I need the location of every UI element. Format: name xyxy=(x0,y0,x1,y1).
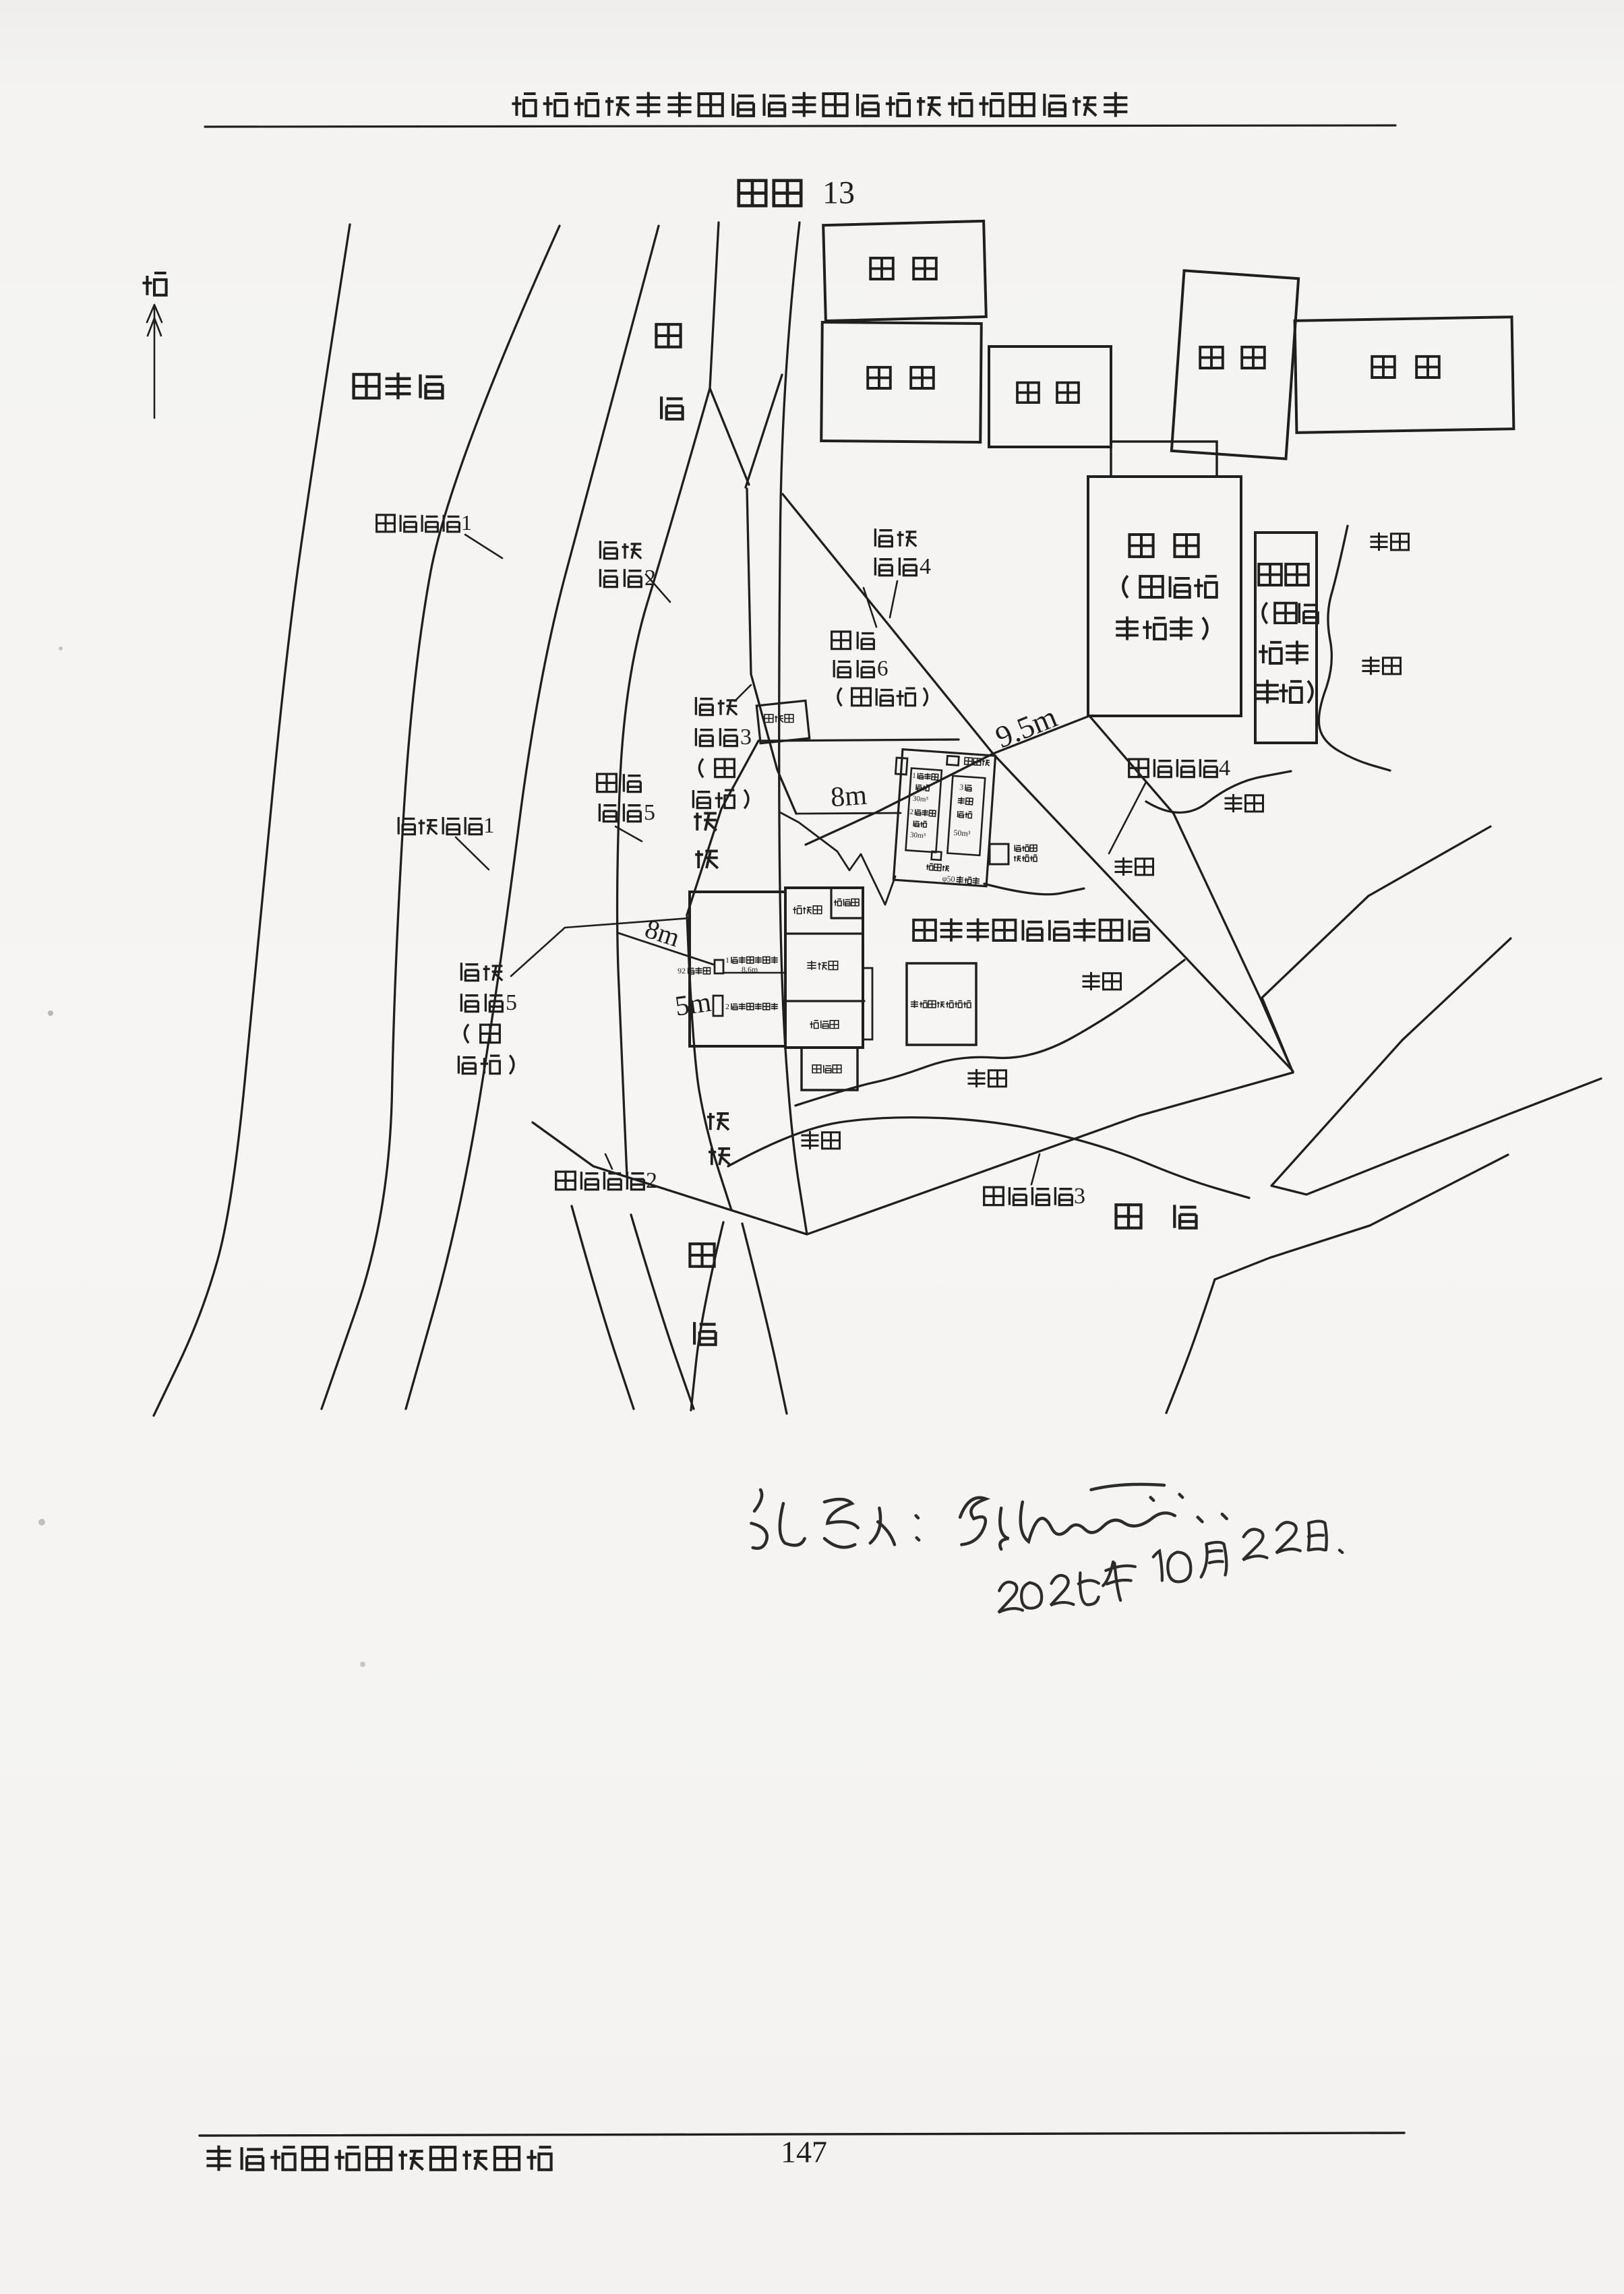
svg-text:5m: 5m xyxy=(673,987,713,1023)
svg-text:2: 2 xyxy=(725,1002,729,1011)
svg-text:4: 4 xyxy=(1219,756,1230,781)
svg-text:30m³: 30m³ xyxy=(912,795,928,804)
svg-text:φ50: φ50 xyxy=(942,874,955,884)
svg-text:30m³: 30m³ xyxy=(910,831,926,841)
svg-text:5: 5 xyxy=(644,800,655,825)
svg-text:4: 4 xyxy=(920,554,931,579)
svg-text:92: 92 xyxy=(678,966,686,975)
svg-text:8.6m: 8.6m xyxy=(742,965,758,974)
svg-text:5: 5 xyxy=(506,990,517,1015)
svg-text:147: 147 xyxy=(781,2135,827,2169)
svg-text:8m: 8m xyxy=(830,780,868,814)
svg-text:1: 1 xyxy=(483,814,495,838)
svg-text:50m³: 50m³ xyxy=(953,828,971,839)
svg-text:2: 2 xyxy=(646,1168,657,1193)
svg-text:3: 3 xyxy=(740,725,752,750)
svg-text:1: 1 xyxy=(461,510,472,535)
svg-text:13: 13 xyxy=(822,175,855,210)
svg-text:6: 6 xyxy=(877,657,889,681)
svg-text:2: 2 xyxy=(909,808,913,816)
svg-text:3: 3 xyxy=(1074,1184,1085,1209)
svg-text:1: 1 xyxy=(912,772,916,780)
svg-text:3: 3 xyxy=(959,782,964,791)
svg-text:1: 1 xyxy=(725,955,729,965)
